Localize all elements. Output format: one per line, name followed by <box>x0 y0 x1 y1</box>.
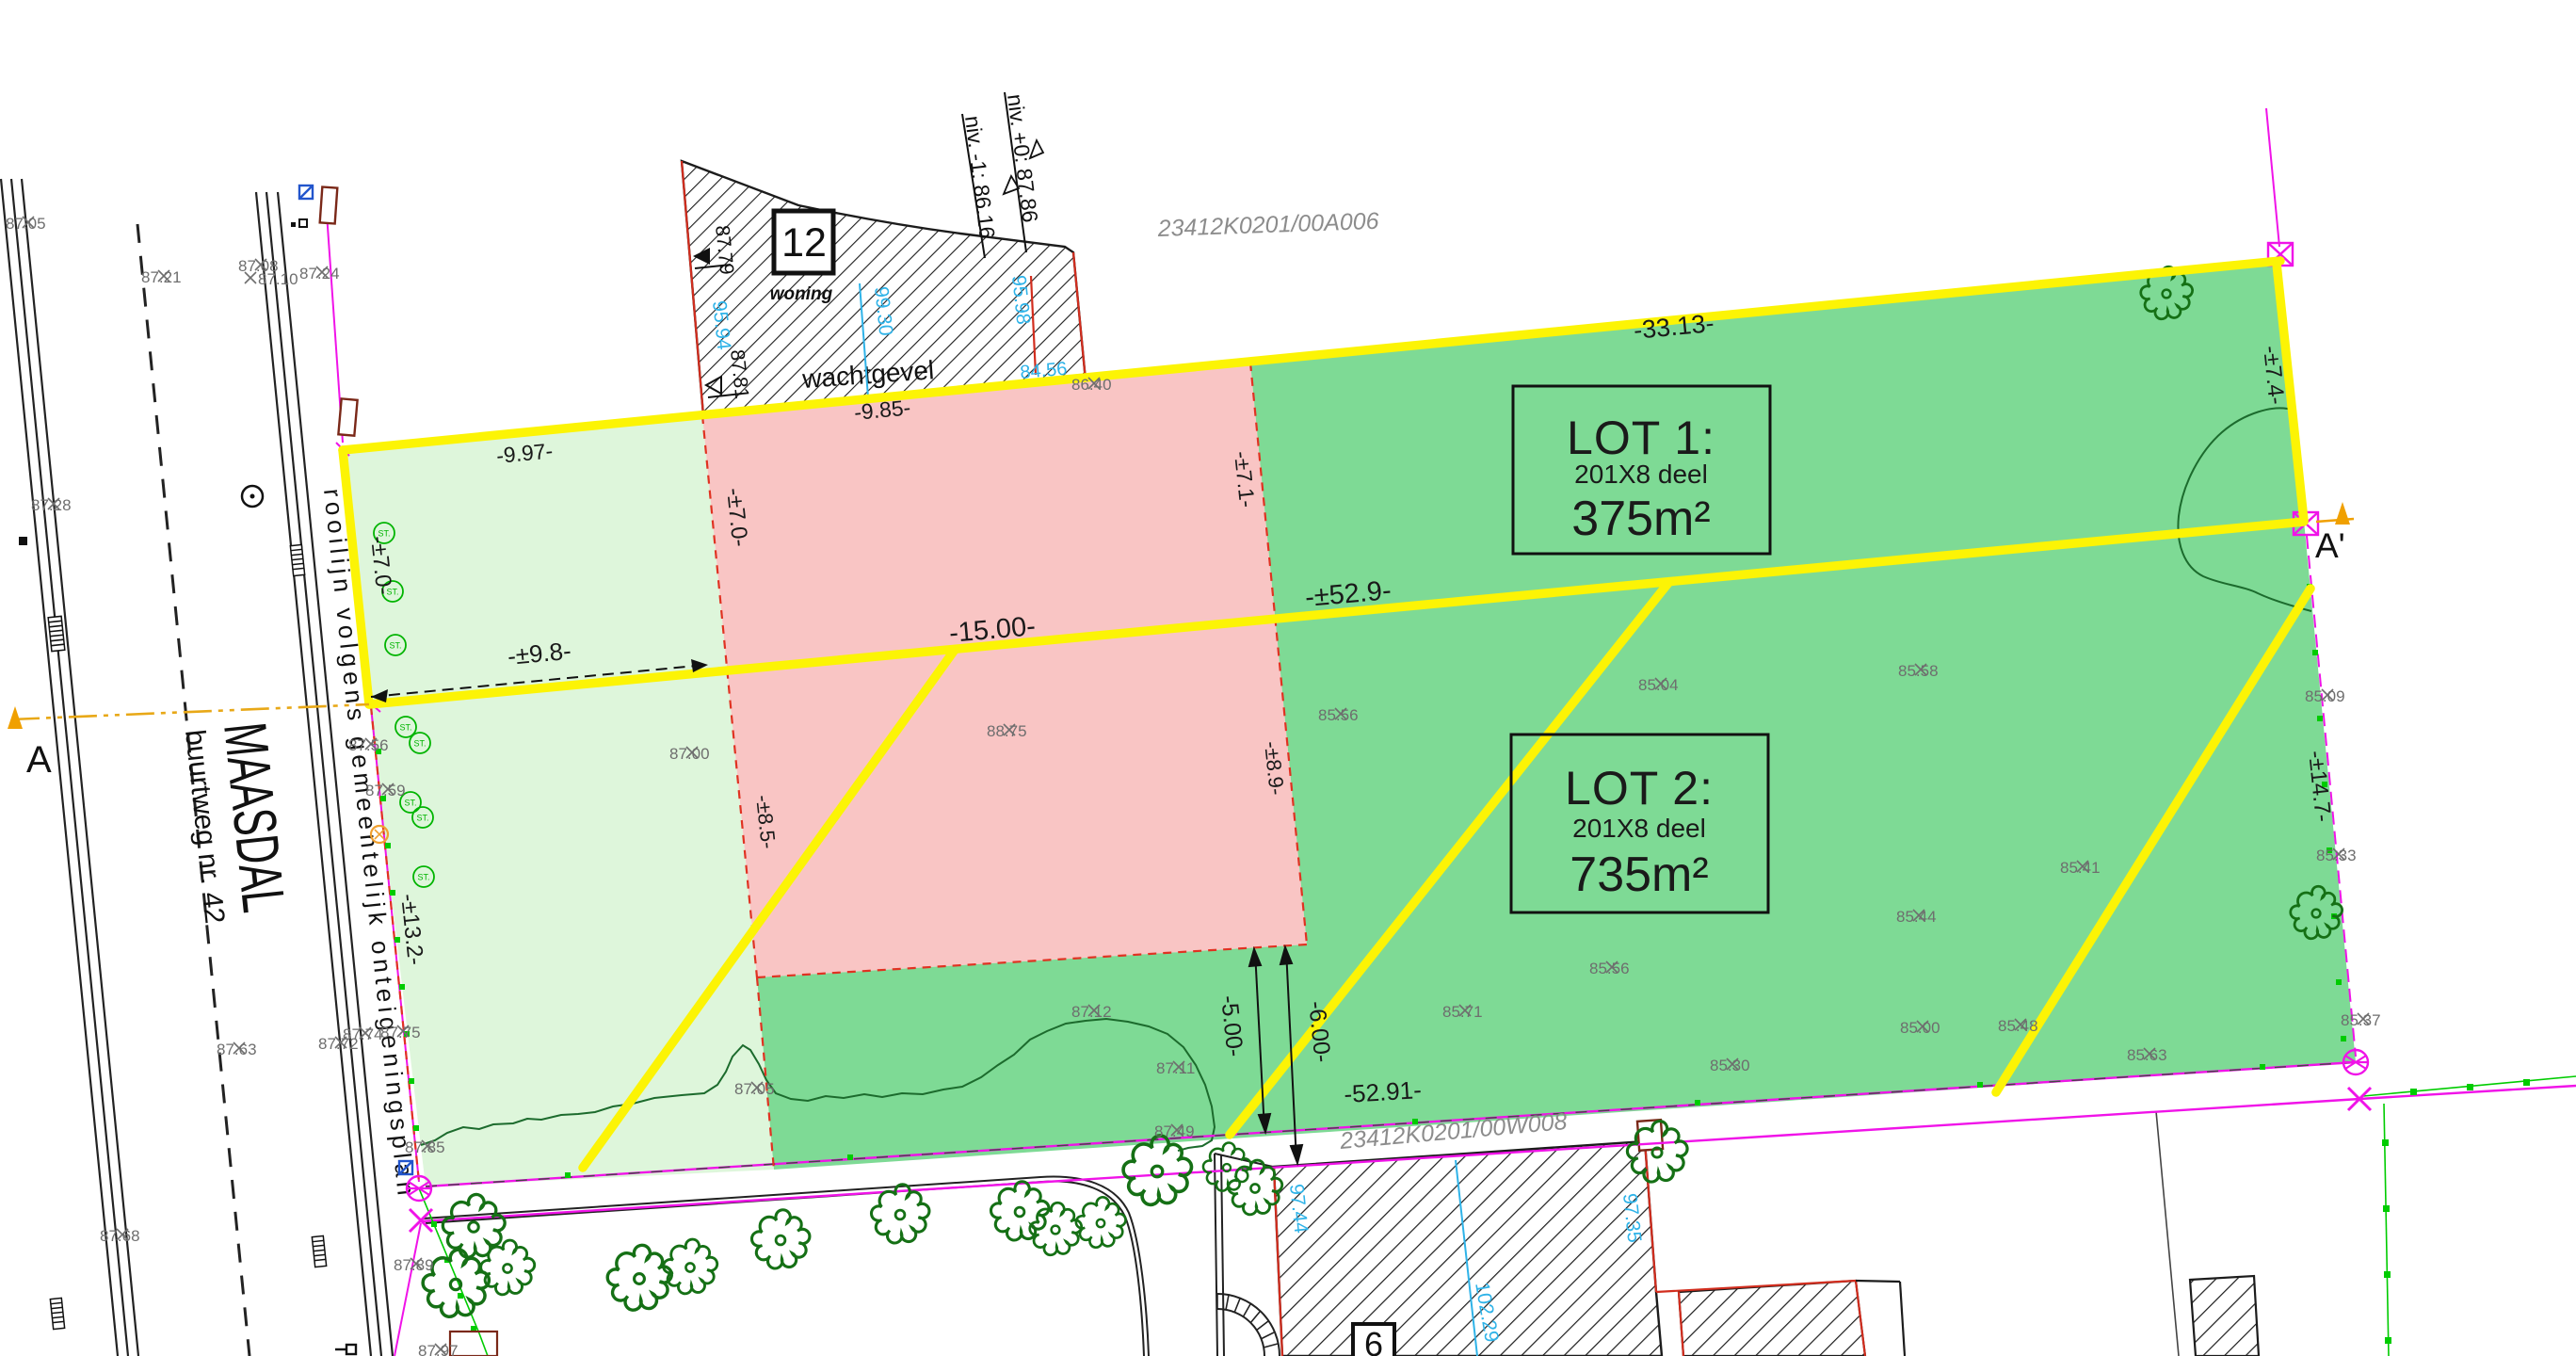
svg-text:87.56: 87.56 <box>348 736 389 754</box>
svg-text:85.00: 85.00 <box>1900 1019 1940 1037</box>
svg-text:85.71: 85.71 <box>1442 1003 1483 1021</box>
svg-text:85.04: 85.04 <box>1638 676 1679 694</box>
svg-text:201X8 deel: 201X8 deel <box>1572 814 1706 843</box>
svg-text:85.56: 85.56 <box>1318 706 1359 724</box>
svg-text:87.63: 87.63 <box>217 1041 257 1058</box>
svg-text:87.75: 87.75 <box>380 1024 421 1041</box>
svg-text:woning: woning <box>770 284 833 304</box>
svg-text:87.05: 87.05 <box>6 215 46 233</box>
svg-text:85.09: 85.09 <box>2305 687 2345 705</box>
svg-text:735m²: 735m² <box>1570 847 1708 902</box>
svg-text:12: 12 <box>781 220 827 266</box>
svg-text:87.68: 87.68 <box>100 1227 140 1245</box>
svg-text:A: A <box>26 739 52 781</box>
svg-text:6: 6 <box>1364 1325 1383 1356</box>
svg-text:85.56: 85.56 <box>1589 960 1630 977</box>
svg-text:87.49: 87.49 <box>1154 1122 1195 1140</box>
svg-text:87.12: 87.12 <box>1071 1003 1112 1021</box>
svg-text:87.11: 87.11 <box>1156 1059 1195 1077</box>
svg-text:85.63: 85.63 <box>2127 1046 2167 1064</box>
svg-text:85.44: 85.44 <box>1896 908 1937 926</box>
svg-text:87.24: 87.24 <box>299 265 340 282</box>
svg-text:-52.91-: -52.91- <box>1344 1075 1423 1108</box>
svg-text:87.59: 87.59 <box>365 782 406 799</box>
svg-text:85.48: 85.48 <box>1998 1017 2038 1035</box>
svg-text:87.10: 87.10 <box>258 270 298 288</box>
svg-text:85.41: 85.41 <box>2060 859 2101 877</box>
svg-text:LOT 1:: LOT 1: <box>1567 412 1715 464</box>
svg-text:85.58: 85.58 <box>1898 662 1939 680</box>
svg-text:87.74: 87.74 <box>343 1025 383 1043</box>
svg-text:87.85: 87.85 <box>405 1138 445 1156</box>
svg-text:375m²: 375m² <box>1571 492 1710 546</box>
svg-text:87.05: 87.05 <box>734 1080 775 1098</box>
svg-text:LOT 2:: LOT 2: <box>1565 762 1714 815</box>
svg-text:85.30: 85.30 <box>1710 1057 1750 1074</box>
svg-text:87.00: 87.00 <box>669 745 710 763</box>
svg-text:85.33: 85.33 <box>2316 847 2357 864</box>
svg-text:87.28: 87.28 <box>31 496 72 514</box>
svg-text:86.40: 86.40 <box>1071 376 1112 394</box>
svg-text:A': A' <box>2315 526 2345 565</box>
svg-text:201X8 deel: 201X8 deel <box>1574 460 1708 489</box>
svg-text:88.75: 88.75 <box>987 722 1027 740</box>
svg-text:87.21: 87.21 <box>141 268 182 286</box>
svg-text:85.37: 85.37 <box>2341 1011 2381 1029</box>
svg-text:87.97: 87.97 <box>418 1342 459 1356</box>
svg-text:87.89: 87.89 <box>394 1256 434 1274</box>
